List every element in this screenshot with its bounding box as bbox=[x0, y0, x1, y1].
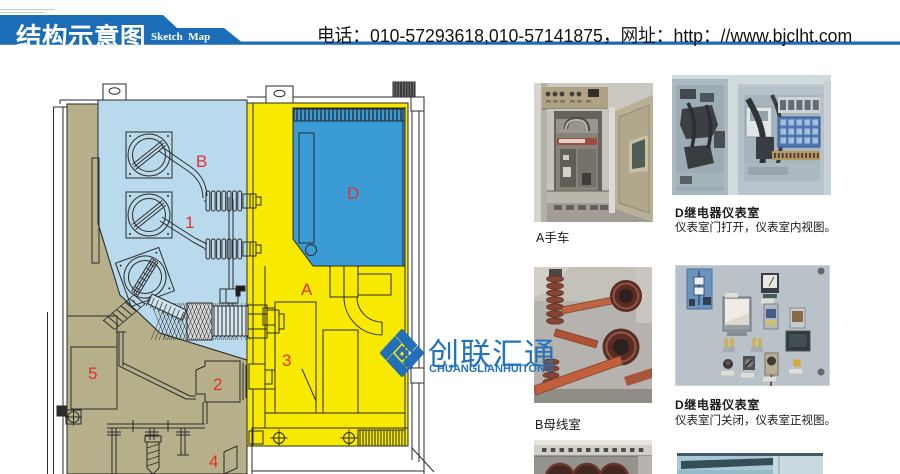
svg-text:1: 1 bbox=[185, 213, 194, 232]
svg-text:4: 4 bbox=[209, 452, 218, 471]
svg-text:3: 3 bbox=[282, 351, 291, 370]
svg-text:B: B bbox=[196, 152, 207, 171]
svg-text:A: A bbox=[301, 280, 313, 299]
svg-text:D: D bbox=[347, 184, 359, 203]
svg-text:2: 2 bbox=[213, 375, 222, 394]
svg-text:5: 5 bbox=[88, 364, 97, 383]
